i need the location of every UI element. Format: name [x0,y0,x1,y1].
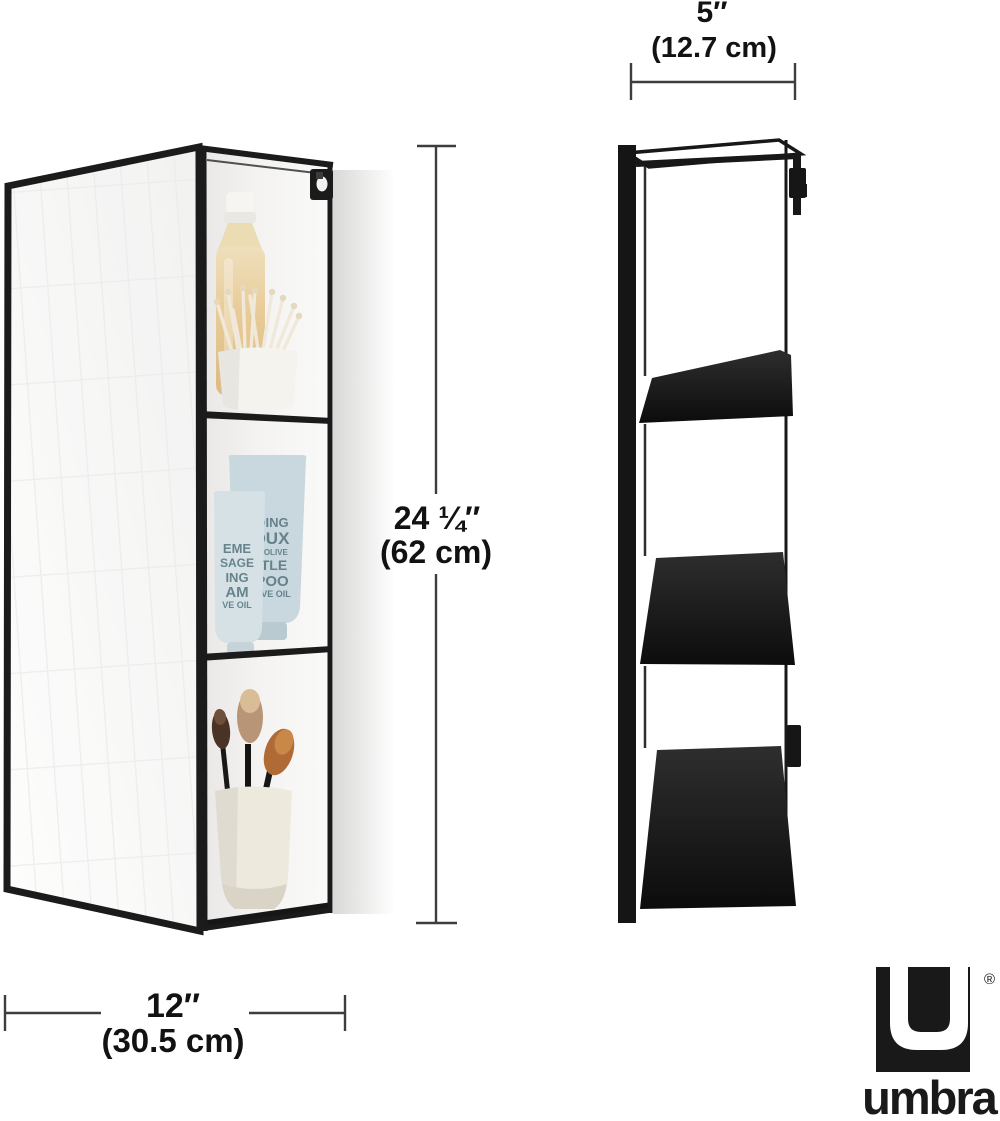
dim-bottom-inches: 12″ [146,987,200,1025]
mirror-cabinet-front-view: OING OUX D'OLIVE ITLE POO LIVE OIL EME S… [7,147,395,931]
tube-small-line3: ING [225,570,248,585]
tube-small-line1: EME [223,541,252,556]
diagram-canvas: OING OUX D'OLIVE ITLE POO LIVE OIL EME S… [0,0,1000,1121]
dim-height-metric: (62 cm) [380,534,492,570]
wall-mount-bracket [310,169,333,200]
mirror-face [7,147,200,931]
product-dimension-diagram: OING OUX D'OLIVE ITLE POO LIVE OIL EME S… [0,0,1000,1121]
tube-small-line4: AM [225,584,248,601]
dim-bottom-metric: (30.5 cm) [101,1022,244,1059]
mirror-sheen [7,147,200,931]
dim-top-metric: (12.7 cm) [651,32,777,64]
registered-trademark: ® [984,971,995,988]
side-front-top-bar [636,156,798,164]
dim-height-inches: 24 ¼″ [394,500,481,536]
umbra-logo: ® umbra [862,967,999,1121]
shelf-side-view [618,140,807,923]
dim-top-inches: 5″ [696,0,727,29]
side-shelf-3 [640,746,796,909]
side-bracket-bottom [787,725,801,767]
dimension-top-width-lines [631,63,795,100]
side-bracket-top-notch [798,184,807,197]
bottle-cap-ring [224,212,256,223]
tube-small-line2: SAGE [220,556,254,570]
side-shelf-2 [640,552,795,665]
side-shelf-1 [639,350,793,423]
side-front-post [618,145,636,923]
tube-small-line5: VE OIL [222,600,252,610]
umbra-wordmark: umbra [862,1071,999,1121]
